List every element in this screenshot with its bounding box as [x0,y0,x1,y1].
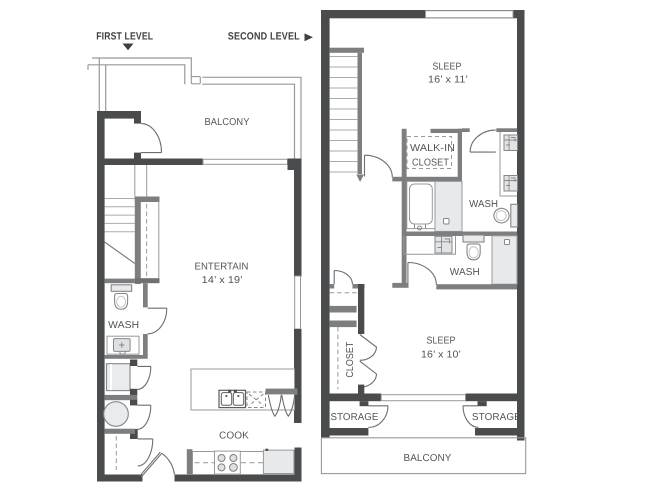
svg-text:STORAGE: STORAGE [472,412,521,423]
svg-text:SECOND LEVEL: SECOND LEVEL [228,31,300,43]
svg-text:CLOSET: CLOSET [412,157,449,168]
svg-text:WASH: WASH [108,320,139,331]
svg-text:COOK: COOK [219,431,249,442]
svg-text:WASH: WASH [469,199,498,210]
svg-text:14’ x 19’: 14’ x 19’ [202,275,243,286]
svg-text:BALCONY: BALCONY [205,117,250,128]
svg-text:CLOSET: CLOSET [345,342,356,378]
svg-text:WASH: WASH [450,267,480,278]
svg-text:16’ x 11’: 16’ x 11’ [428,74,468,85]
svg-text:FIRST LEVEL: FIRST LEVEL [96,31,153,43]
svg-text:WALK-IN: WALK-IN [410,143,455,154]
svg-text:SLEEP: SLEEP [433,61,462,72]
svg-text:16’ x 10’: 16’ x 10’ [421,350,461,361]
svg-text:STORAGE: STORAGE [331,412,379,423]
svg-text:SLEEP: SLEEP [427,336,456,347]
svg-text:ENTERTAIN: ENTERTAIN [195,261,249,272]
svg-text:BALCONY: BALCONY [404,453,452,464]
